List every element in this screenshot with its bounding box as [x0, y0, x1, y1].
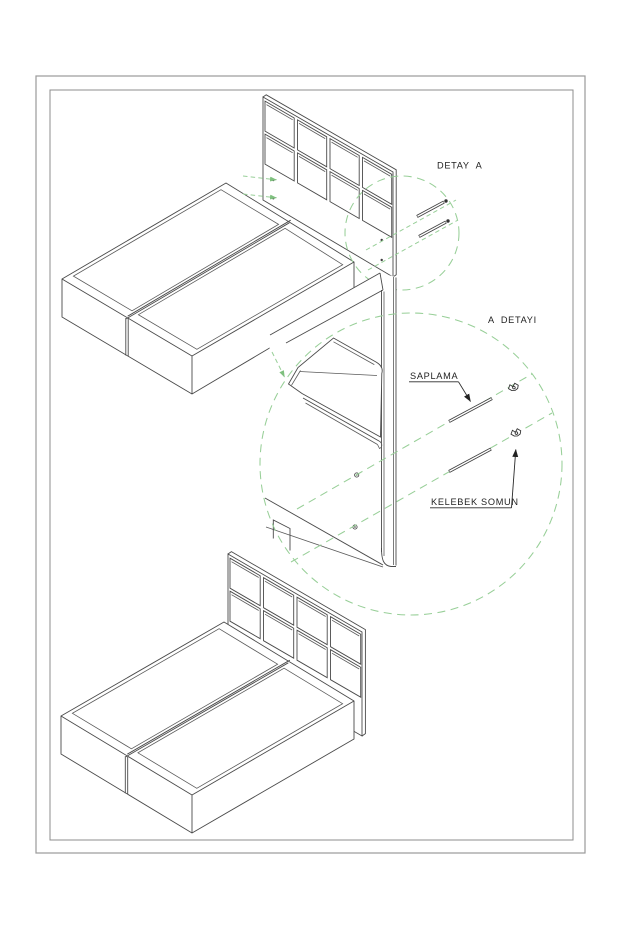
saplama-leader: [459, 382, 471, 402]
kelebek-somun-label: KELEBEK SOMUN: [431, 497, 519, 507]
saplama-label: SAPLAMA: [410, 371, 458, 381]
bed-corner-notch: [273, 520, 290, 551]
insertion-direction-arrow: [243, 176, 277, 180]
detail-a-label: DETAY A: [437, 161, 483, 171]
wing-nut-icon: [508, 383, 519, 392]
technical-drawing: DETAY A: [0, 0, 621, 931]
detail-a-magnified-view: SAPLAMA KELEBEK SOMUN A DETAYI: [260, 273, 562, 615]
stud-icon: [449, 449, 491, 472]
stud-icon: [419, 219, 450, 236]
stud-icon: [417, 199, 448, 216]
detail-view-title: A DETAYI: [488, 315, 537, 325]
wing-nut-icon: [510, 428, 521, 437]
bottom-assembled-view: [61, 552, 365, 833]
stud-icon: [449, 399, 492, 422]
mounting-hole: [381, 259, 383, 261]
drawing-sheet: DETAY A: [0, 0, 621, 931]
